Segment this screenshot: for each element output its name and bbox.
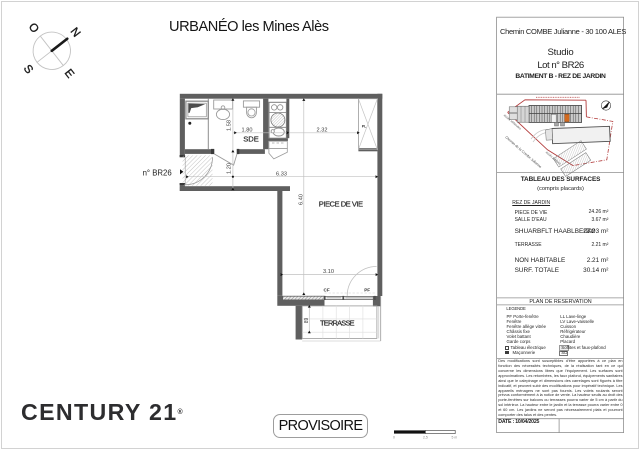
svg-text:89: 89 [304, 318, 310, 324]
svg-text:E: E [62, 67, 76, 81]
svg-text:2.32: 2.32 [317, 127, 328, 133]
svg-text:Chemin de la Combe Julianne: Chemin de la Combe Julianne [504, 135, 542, 169]
svg-text:TERRASSE: TERRASSE [320, 318, 355, 327]
svg-text:1.58: 1.58 [227, 120, 233, 131]
svg-text:0: 0 [393, 436, 395, 440]
svg-text:PIECE DE VIE: PIECE DE VIE [319, 199, 363, 208]
svg-text:n° BR26: n° BR26 [143, 168, 172, 177]
svg-text:2,5: 2,5 [423, 436, 428, 440]
svg-text:SDE: SDE [243, 134, 259, 143]
svg-text:1.80: 1.80 [242, 127, 253, 133]
svg-text:1.20: 1.20 [227, 163, 233, 174]
svg-text:6.40: 6.40 [299, 194, 305, 205]
svg-text:5 m: 5 m [452, 436, 458, 440]
svg-text:CF: CF [324, 287, 330, 292]
svg-text:PL: PL [362, 125, 367, 129]
svg-text:S: S [21, 63, 35, 77]
svg-text:PF: PF [364, 287, 370, 292]
svg-text:N: N [68, 26, 83, 40]
svg-text:3.10: 3.10 [323, 269, 334, 275]
svg-text:O: O [26, 21, 41, 35]
svg-text:6.33: 6.33 [276, 172, 287, 178]
